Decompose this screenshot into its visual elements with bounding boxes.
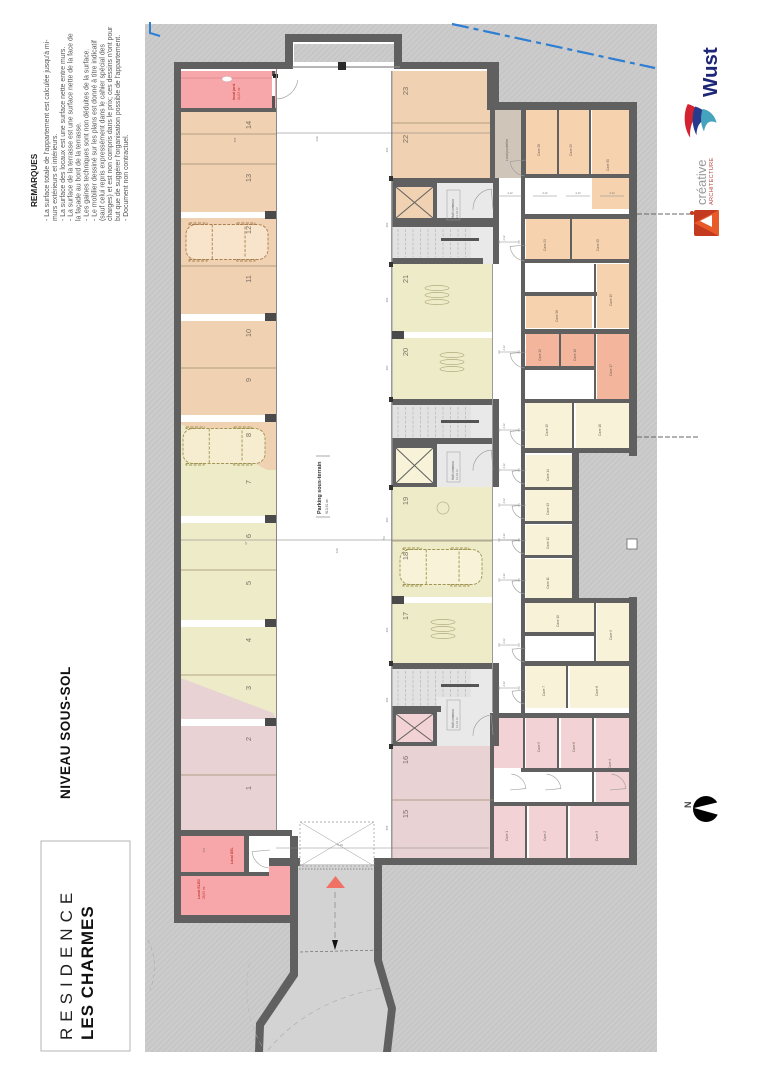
svg-text:Cave 14: Cave 14 — [546, 469, 550, 481]
svg-text:Cave 2: Cave 2 — [543, 831, 547, 841]
svg-text:11: 11 — [244, 275, 253, 283]
svg-text:6: 6 — [244, 534, 253, 538]
svg-text:13,04 m²: 13,04 m² — [455, 207, 459, 218]
svg-text:300: 300 — [385, 517, 389, 522]
svg-text:Cave 13: Cave 13 — [546, 503, 550, 515]
svg-text:ARCHITECTURE: ARCHITECTURE — [709, 158, 715, 205]
svg-text:2.12: 2.12 — [502, 533, 506, 539]
svg-text:19: 19 — [401, 497, 410, 505]
svg-text:505: 505 — [202, 847, 206, 852]
svg-text:NIVEAU SOUS-SOL: NIVEAU SOUS-SOL — [58, 666, 73, 799]
svg-text:Local poubelles: Local poubelles — [505, 139, 509, 162]
svg-text:Cave 12: Cave 12 — [546, 537, 550, 549]
svg-text:2.12: 2.12 — [502, 681, 506, 687]
svg-text:murs extérieurs et intérieurs.: murs extérieurs et intérieurs. — [52, 134, 59, 221]
svg-text:22: 22 — [401, 135, 410, 143]
svg-text:Cave 30: Cave 30 — [606, 159, 610, 171]
svg-text:10: 10 — [244, 329, 253, 337]
svg-text:Cave 16: Cave 16 — [598, 424, 602, 436]
svg-text:300: 300 — [385, 297, 389, 302]
svg-text:13,04 m²: 13,04 m² — [455, 717, 459, 728]
svg-text:9: 9 — [244, 378, 253, 382]
svg-text:Local ELEC: Local ELEC — [197, 879, 201, 899]
svg-text:RESIDENCE: RESIDENCE — [57, 887, 76, 1040]
svg-text:- La surface de la terrasse es: - La surface de la terrasse est une surf… — [68, 33, 75, 221]
svg-text:5: 5 — [244, 581, 253, 585]
svg-text:360: 360 — [385, 697, 389, 702]
svg-text:23: 23 — [401, 87, 410, 95]
svg-text:Cave 9: Cave 9 — [609, 630, 613, 640]
svg-text:local jard.: local jard. — [232, 83, 236, 100]
svg-text:4: 4 — [244, 638, 253, 642]
svg-text:but que de suggérer l'organisa: but que de suggérer l'organisation possi… — [115, 35, 122, 221]
svg-text:2.12: 2.12 — [502, 345, 506, 351]
svg-text:N: N — [683, 802, 693, 809]
svg-text:97: 97 — [244, 541, 248, 545]
svg-text:Parking sous-terrain: Parking sous-terrain — [317, 462, 323, 514]
svg-text:Cave 6: Cave 6 — [572, 742, 576, 752]
svg-text:REMARQUES: REMARQUES — [30, 153, 39, 207]
svg-text:505: 505 — [385, 825, 389, 830]
svg-text:7: 7 — [244, 480, 253, 484]
svg-text:2.12: 2.12 — [542, 191, 548, 195]
svg-text:2.12: 2.12 — [502, 423, 506, 429]
svg-text:Cave 19: Cave 19 — [609, 294, 613, 306]
svg-text:2: 2 — [244, 737, 253, 741]
svg-text:5.16: 5.16 — [337, 843, 343, 847]
svg-text:Cave 28: Cave 28 — [537, 144, 541, 156]
svg-text:Cave 19: Cave 19 — [538, 349, 542, 361]
svg-text:54: 54 — [382, 536, 386, 540]
svg-text:Cave 5: Cave 5 — [537, 742, 541, 752]
svg-text:2.12: 2.12 — [609, 191, 615, 195]
svg-text:13,04 m²: 13,04 m² — [455, 469, 459, 480]
svg-text:Cave 20: Cave 20 — [596, 239, 600, 251]
svg-text:Cave 18: Cave 18 — [573, 349, 577, 361]
svg-text:- Le mobilier dessiné sur les: - Le mobilier dessiné sur les plans est … — [91, 40, 98, 221]
svg-text:Cave 11: Cave 11 — [546, 577, 550, 589]
svg-text:2.12: 2.12 — [575, 191, 581, 195]
svg-text:17: 17 — [401, 612, 410, 620]
svg-text:1: 1 — [244, 786, 253, 790]
svg-text:2.12: 2.12 — [507, 191, 513, 195]
svg-text:13: 13 — [244, 174, 253, 182]
svg-text:12: 12 — [244, 226, 253, 234]
svg-text:2.12: 2.12 — [502, 573, 506, 579]
svg-text:18: 18 — [401, 552, 410, 560]
svg-text:Cave 17: Cave 17 — [609, 364, 613, 376]
svg-text:139: 139 — [335, 548, 339, 553]
svg-text:- Document non contractuel.: - Document non contractuel. — [123, 134, 130, 221]
svg-text:2.12: 2.12 — [502, 463, 506, 469]
svg-text:Cave 15: Cave 15 — [545, 424, 549, 436]
svg-text:- La surface totale de l'appar: - La surface totale de l'appartement est… — [44, 39, 51, 221]
svg-text:21: 21 — [401, 275, 410, 283]
svg-text:300: 300 — [385, 147, 389, 152]
svg-text:Cave 8: Cave 8 — [595, 686, 599, 696]
svg-text:la façade au bord de la terras: la façade au bord de la terrasse. — [76, 122, 83, 221]
svg-text:300: 300 — [385, 627, 389, 632]
svg-text:Wust: Wust — [699, 47, 722, 97]
svg-text:139: 139 — [315, 136, 319, 141]
svg-text:charges) et est non compris da: charges) et est non compris dans le prix… — [107, 26, 114, 221]
svg-text:16: 16 — [401, 756, 410, 764]
svg-text:créative: créative — [694, 159, 709, 205]
svg-text:Cave 10: Cave 10 — [556, 615, 560, 627]
svg-text:913,51 m²: 913,51 m² — [325, 498, 329, 514]
svg-text:- La surface des locaux est un: - La surface des locaux est une surface … — [60, 47, 67, 221]
svg-text:Local DEL: Local DEL — [230, 847, 234, 864]
svg-text:360: 360 — [385, 222, 389, 227]
svg-text:28,05 m²: 28,05 m² — [202, 886, 206, 899]
svg-text:300: 300 — [385, 365, 389, 370]
svg-text:24,03 m²: 24,03 m² — [237, 87, 241, 100]
svg-text:LES CHARMES: LES CHARMES — [78, 905, 97, 1040]
svg-text:Cave 4: Cave 4 — [608, 759, 612, 769]
svg-text:Cave 1: Cave 1 — [505, 831, 509, 841]
svg-text:3: 3 — [244, 686, 253, 690]
svg-text:8: 8 — [244, 433, 253, 437]
svg-text:Cave 3: Cave 3 — [595, 831, 599, 841]
svg-text:Cave 26: Cave 26 — [555, 310, 559, 322]
svg-text:Cave 21: Cave 21 — [543, 239, 547, 251]
svg-text:(sauf celui repris expressémen: (sauf celui repris expressément dans le … — [99, 43, 106, 221]
svg-text:2.12: 2.12 — [502, 498, 506, 504]
svg-text:15: 15 — [401, 810, 410, 818]
svg-text:20: 20 — [401, 348, 410, 356]
svg-text:505: 505 — [233, 137, 237, 142]
svg-text:Cave 7: Cave 7 — [542, 686, 546, 696]
svg-text:2.12: 2.12 — [502, 235, 506, 241]
svg-text:2.12: 2.12 — [502, 638, 506, 644]
svg-text:- Les gaines techniques sont n: - Les gaines techniques sont non déduite… — [84, 49, 91, 221]
svg-text:14: 14 — [244, 121, 253, 129]
svg-text:Cave 29: Cave 29 — [569, 144, 573, 156]
